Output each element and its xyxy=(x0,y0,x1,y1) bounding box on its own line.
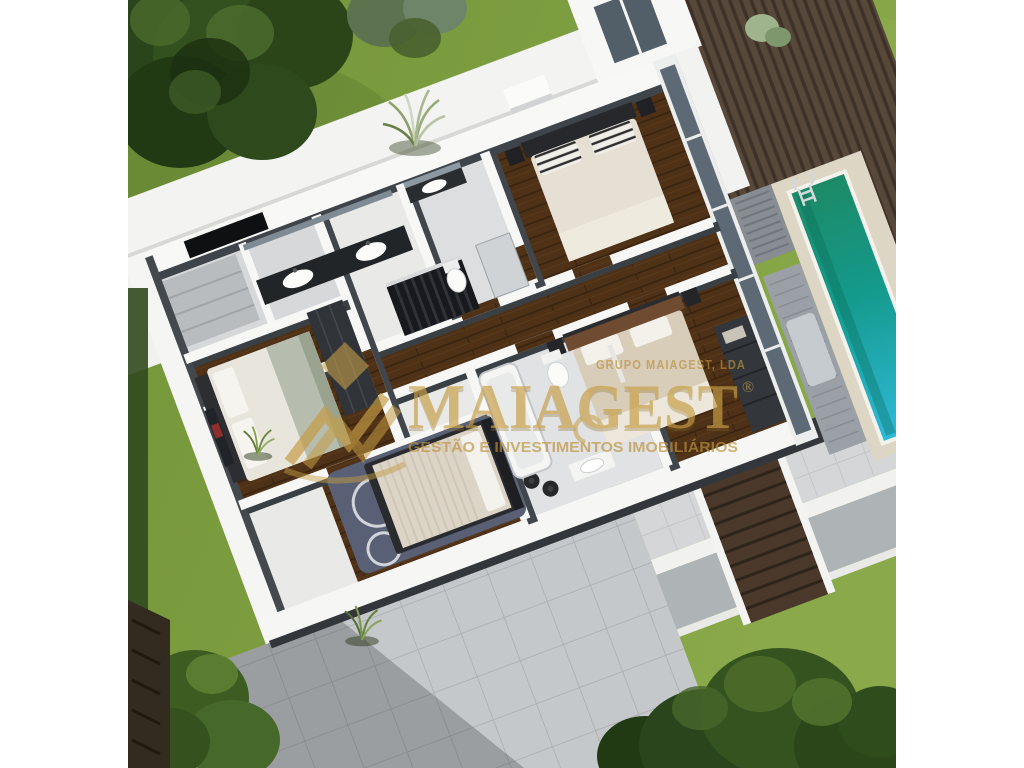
margin-left xyxy=(0,0,128,768)
floor-plan-render: GRUPO MAIAGEST, LDA MAIAGEST MAIAGEST ® … xyxy=(0,0,1024,768)
watermark-company-line: GRUPO MAIAGEST, LDA xyxy=(596,358,746,372)
watermark-brand: MAIAGEST xyxy=(408,371,738,442)
watermark-tagline: GESTÃO E INVESTIMENTOS IMOBILIÁRIOS xyxy=(408,438,738,456)
scene-svg: GRUPO MAIAGEST, LDA MAIAGEST MAIAGEST ® … xyxy=(0,0,1024,768)
margin-right xyxy=(896,0,1024,768)
hedge-left-edge xyxy=(128,288,148,618)
deck-bottom-left-corner xyxy=(128,600,170,768)
watermark-registered-icon: ® xyxy=(742,379,754,396)
